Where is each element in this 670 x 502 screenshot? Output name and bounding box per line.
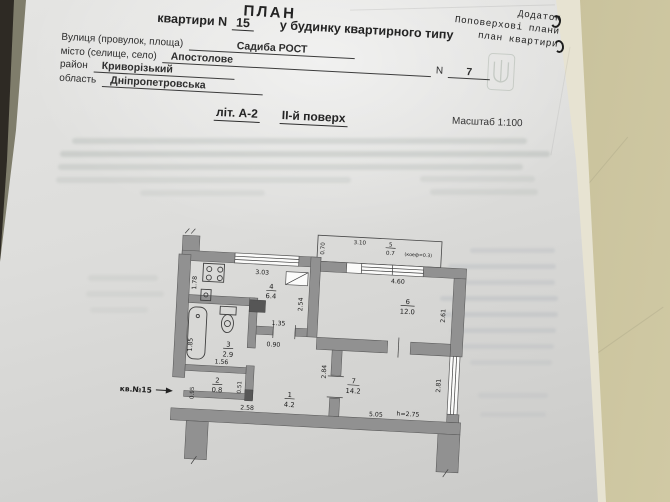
dim-kitchen-right: 2.54 xyxy=(297,297,305,311)
dim-bath-door: 0.90 xyxy=(266,341,280,349)
svg-text:3: 3 xyxy=(226,341,231,349)
room6-label: 6 12.0 xyxy=(400,298,416,317)
dim-balcony-top: 3.10 xyxy=(353,240,366,247)
svg-text:6: 6 xyxy=(405,298,410,306)
dim-hall-wall: 2.84 xyxy=(321,365,329,379)
bathroom-top-wall xyxy=(189,295,255,306)
kitchen-hall-wall xyxy=(256,326,273,335)
bleedthrough-smudge xyxy=(140,190,265,196)
dim-room7-bottom: 5.05 xyxy=(369,411,383,419)
bleedthrough-smudge xyxy=(420,176,535,182)
bleedthrough-smudge xyxy=(430,189,538,195)
svg-text:14.2: 14.2 xyxy=(345,387,361,396)
dim-kitchen-left: 1.78 xyxy=(191,276,199,290)
room2-label: 2 0.8 xyxy=(211,376,223,394)
room7-label: 7 14.2 xyxy=(345,377,361,396)
bottom-left-column xyxy=(184,421,208,460)
svg-text:0.7: 0.7 xyxy=(386,251,396,257)
svg-text:12.0: 12.0 xyxy=(400,308,416,317)
kitchen-window xyxy=(235,253,299,266)
bleedthrough-smudge xyxy=(56,177,351,183)
bottom-right-column xyxy=(436,434,460,473)
subtitle-pre: квартири N xyxy=(157,11,228,29)
dim-room7-right: 2.81 xyxy=(435,379,443,393)
kitchen-room6-wall xyxy=(307,257,321,337)
room7-window xyxy=(447,356,460,414)
stove-icon xyxy=(203,263,225,282)
bleedthrough-smudge xyxy=(60,151,550,157)
walls xyxy=(168,228,470,478)
vent-shaft xyxy=(244,390,253,401)
bleedthrough-smudge xyxy=(58,164,523,170)
bleedthrough-smudge xyxy=(480,412,546,417)
floor-label: ІІ-й поверх xyxy=(279,108,347,127)
svg-text:4: 4 xyxy=(269,283,274,291)
balcony-coefficient: (коеф=0.3) xyxy=(404,252,432,259)
svg-text:2.9: 2.9 xyxy=(222,350,233,359)
svg-text:4.2: 4.2 xyxy=(284,401,295,410)
dim-kitchen-top: 3.03 xyxy=(255,269,269,277)
svg-text:1: 1 xyxy=(287,391,292,399)
dim-bath-left: 1.85 xyxy=(187,338,195,352)
apartment-label: кв.№15 xyxy=(120,384,153,395)
dim-bath-top: 1.35 xyxy=(271,320,285,328)
floor-plan-svg: кв.№15 3.03 1.78 2.54 4 6.4 4.60 2.61 6 … xyxy=(104,219,481,488)
svg-text:2: 2 xyxy=(215,377,220,385)
field-value: 7 xyxy=(448,66,491,80)
dim-room6-top: 4.60 xyxy=(391,278,405,286)
room4-label: 4 6.4 xyxy=(265,283,277,301)
bleedthrough-smudge xyxy=(462,344,554,349)
svg-text:6.4: 6.4 xyxy=(265,292,276,301)
dim-closet-right: 0.51 xyxy=(237,381,244,394)
dim-entry: 0.95 xyxy=(189,386,196,399)
dim-balcony-left: 0.70 xyxy=(320,242,327,255)
hall-room7-wall xyxy=(331,350,342,375)
entry-arrow xyxy=(156,387,173,394)
room5-label: 5 0.7 xyxy=(385,242,396,257)
field-label: область xyxy=(59,72,97,85)
cupboard-icon xyxy=(286,272,309,286)
bleedthrough-smudge xyxy=(470,248,555,253)
field-label: N xyxy=(436,65,444,76)
bleedthrough-smudge xyxy=(470,360,552,365)
svg-text:7: 7 xyxy=(351,377,356,385)
apartment-number: 15 xyxy=(232,15,255,31)
toilet-icon xyxy=(219,306,236,333)
dim-room6-right: 2.61 xyxy=(440,309,448,323)
ceiling-height-label: h=2.75 xyxy=(396,411,419,419)
vent-shaft xyxy=(249,300,266,313)
room1-label: 1 4.2 xyxy=(284,391,296,410)
room6-room7-wall xyxy=(316,337,388,353)
balcony-door-window xyxy=(346,263,423,277)
svg-text:0.8: 0.8 xyxy=(211,386,222,395)
dim-hall-bottom: 2.58 xyxy=(240,404,254,412)
left-wall xyxy=(173,254,191,377)
building-letter: літ. А-2 xyxy=(214,105,261,123)
room3-label: 3 2.9 xyxy=(222,340,234,359)
right-wall xyxy=(450,278,466,357)
photo-of-floor-plan-document: Додаток Поповерхові плани план квартири … xyxy=(0,0,670,502)
bathroom-closet-wall xyxy=(185,364,246,373)
bleedthrough-smudge xyxy=(478,393,548,398)
field-label: район xyxy=(60,59,88,71)
bleedthrough-smudge xyxy=(72,138,527,144)
dim-bath-bottom: 1.56 xyxy=(214,358,228,366)
fixtures xyxy=(187,263,309,365)
